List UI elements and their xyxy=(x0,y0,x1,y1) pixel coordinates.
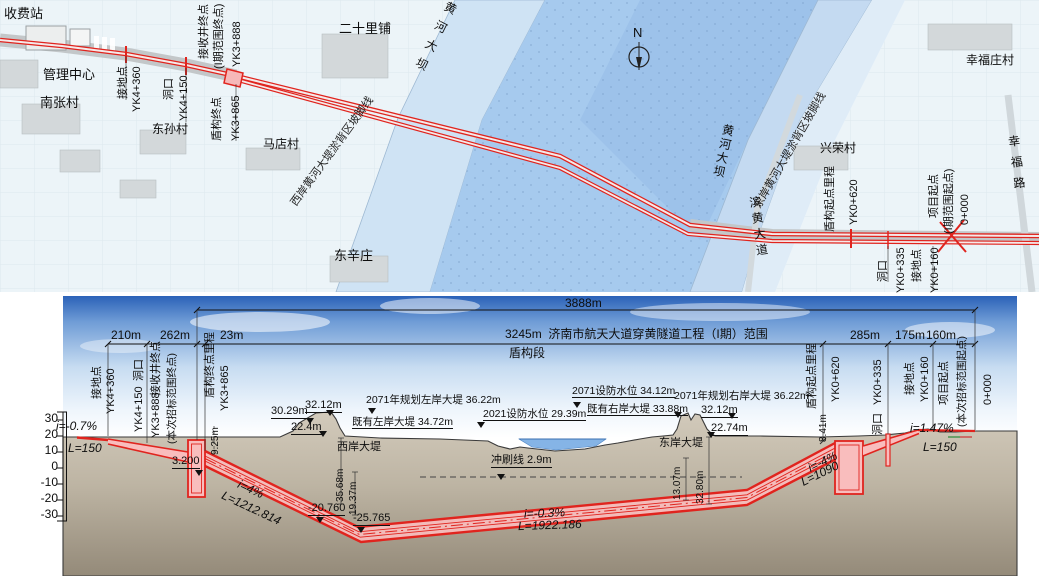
plan-profile-drawing xyxy=(0,0,1039,576)
longitudinal-profile xyxy=(57,296,1017,576)
receiving-shaft-profile xyxy=(188,440,205,497)
receiving-shaft-symbol xyxy=(224,69,243,87)
plan-map xyxy=(0,0,1039,292)
drawing-sheet: 收费站管理中心南张村东孙村马店村二十里铺东辛庄幸福庄村兴荣村N黄河大坝黄河大坝滨… xyxy=(0,0,1039,576)
east-portal-bar xyxy=(886,434,890,466)
